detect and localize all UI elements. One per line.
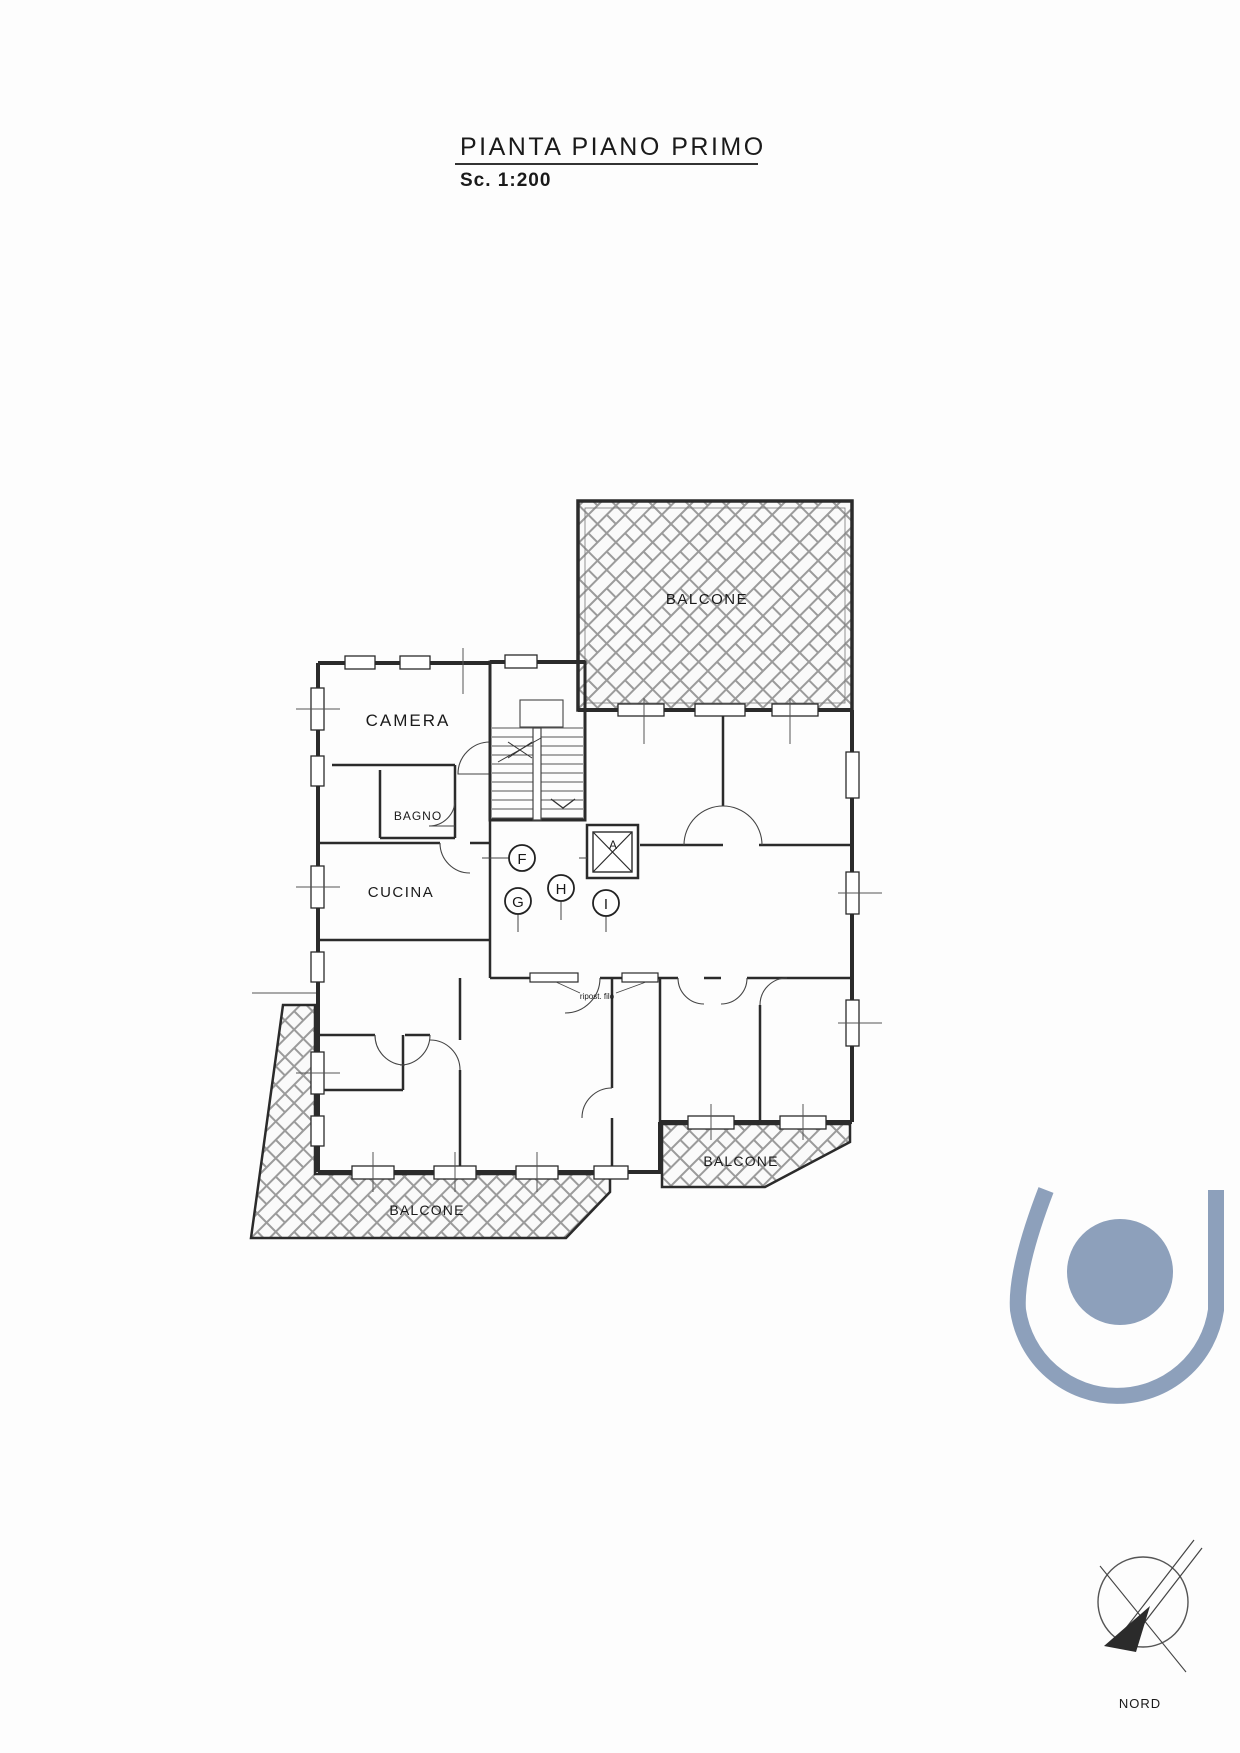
balcony-top-label: BALCONE [666, 591, 748, 608]
unit-marker-f: F [517, 851, 526, 868]
scale-label: Sc. 1:200 [460, 170, 551, 191]
title-block: PIANTA PIANO PRIMO Sc. 1:200 [455, 133, 766, 191]
staircase [490, 662, 585, 820]
closet-note-label: ripost. filo [580, 992, 615, 1001]
closet-annotation: ripost. filo [530, 973, 658, 1001]
unit-marker-h: H [556, 881, 567, 898]
north-compass: NORD [1098, 1540, 1202, 1711]
logo [1018, 1190, 1216, 1396]
axis-ticks [252, 648, 882, 1192]
logo-dot [1067, 1219, 1173, 1325]
room-labels: CAMERA BAGNO CUCINA [366, 711, 451, 901]
room-label-cucina: CUCINA [368, 884, 435, 901]
balcony-bottom-right-label: BALCONE [703, 1153, 778, 1169]
balcony-bottom-right: BALCONE [662, 1124, 850, 1187]
page-title: PIANTA PIANO PRIMO [460, 133, 766, 161]
unit-marker-i: I [604, 896, 608, 913]
balcony-bottom-left-label: BALCONE [389, 1202, 464, 1218]
room-label-bagno: BAGNO [394, 809, 442, 823]
room-label-camera: CAMERA [366, 711, 451, 730]
floor-plan-drawing: PIANTA PIANO PRIMO Sc. 1:200 BALCONE BAL… [0, 0, 1240, 1753]
floor-plan-sheet: PIANTA PIANO PRIMO Sc. 1:200 BALCONE BAL… [0, 0, 1240, 1753]
door-swings [375, 742, 787, 1118]
unit-marker-g: G [512, 894, 524, 911]
north-label: NORD [1119, 1696, 1161, 1711]
elevator-label: A [609, 838, 617, 852]
compass-needle [1104, 1606, 1150, 1652]
compass-circle [1098, 1557, 1188, 1647]
elevator: A [579, 825, 638, 878]
balcony-top: BALCONE [578, 501, 852, 710]
